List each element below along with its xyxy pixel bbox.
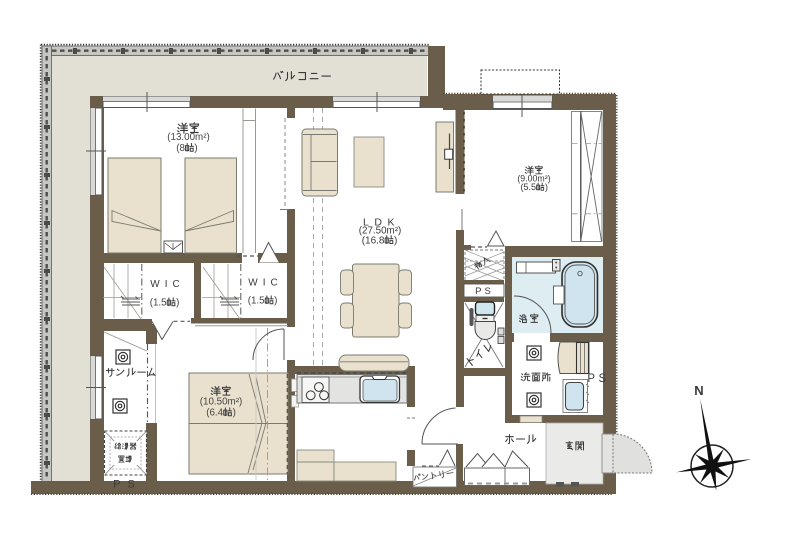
svg-text:PS: PS (475, 286, 494, 297)
svg-text:PS: PS (587, 373, 609, 385)
svg-text:(6.4: (6.4 (206, 408, 223, 419)
svg-text:WIC: WIC (248, 278, 282, 289)
svg-text:): ) (394, 236, 397, 247)
svg-text:(1.5: (1.5 (248, 296, 265, 307)
svg-text:N: N (694, 383, 703, 398)
svg-text:(13.00m²): (13.00m²) (167, 132, 209, 143)
svg-text:(8: (8 (176, 143, 185, 154)
svg-text:(16.8: (16.8 (362, 236, 385, 247)
svg-text:WIC: WIC (150, 279, 184, 290)
svg-text:(5.5: (5.5 (521, 182, 537, 192)
svg-text:PS: PS (113, 479, 142, 491)
svg-text:): ) (176, 298, 179, 309)
svg-text:): ) (233, 408, 236, 419)
svg-text:(1.5: (1.5 (150, 298, 167, 309)
svg-text:): ) (194, 143, 197, 154)
svg-text:): ) (274, 296, 277, 307)
svg-text:(10.50m²): (10.50m²) (200, 397, 242, 408)
svg-text:): ) (545, 182, 548, 192)
